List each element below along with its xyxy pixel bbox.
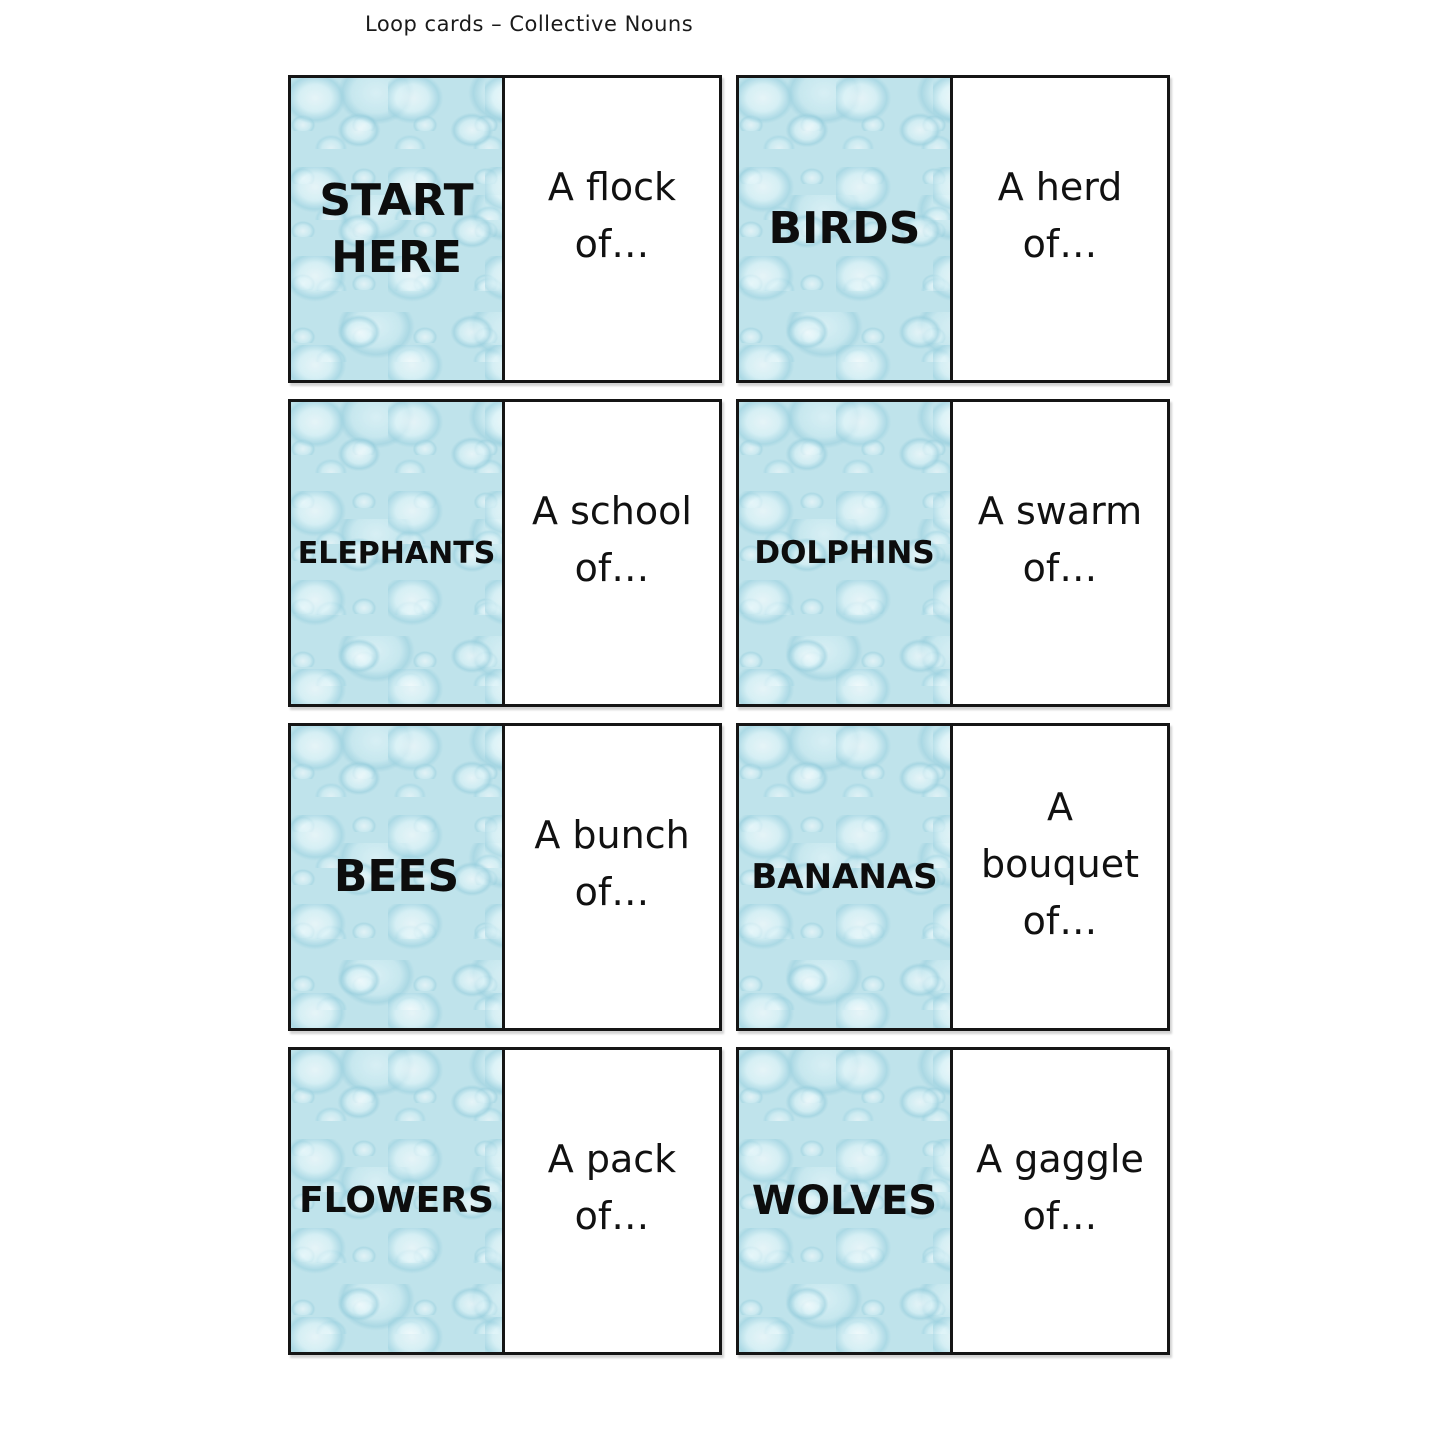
loop-card-bananas: BANANAS A bouquet of… (736, 723, 1170, 1031)
loop-card-dolphins: DOLPHINS A swarm of… (736, 399, 1170, 707)
card-clue: A bouquet of… (981, 779, 1139, 950)
loop-card-grid: START HERE A flock of… BIRDS A herd of… … (288, 75, 1170, 1355)
card-term-panel: BEES (291, 726, 505, 1028)
card-clue-panel: A bouquet of… (953, 726, 1167, 1028)
card-clue: A flock of… (548, 159, 676, 273)
card-clue: A school of… (532, 483, 692, 597)
card-clue: A swarm of… (978, 483, 1142, 597)
card-clue-panel: A swarm of… (953, 402, 1167, 704)
card-clue-panel: A pack of… (505, 1050, 719, 1352)
card-term: WOLVES (748, 1175, 941, 1227)
card-clue-panel: A school of… (505, 402, 719, 704)
card-term: BEES (330, 848, 463, 905)
card-clue-panel: A herd of… (953, 78, 1167, 380)
card-clue-panel: A flock of… (505, 78, 719, 380)
card-term: DOLPHINS (750, 533, 938, 573)
card-term-panel: BIRDS (739, 78, 953, 380)
card-term-panel: DOLPHINS (739, 402, 953, 704)
loop-card-wolves: WOLVES A gaggle of… (736, 1047, 1170, 1355)
loop-card-start-here: START HERE A flock of… (288, 75, 722, 383)
loop-card-birds: BIRDS A herd of… (736, 75, 1170, 383)
card-term-panel: BANANAS (739, 726, 953, 1028)
card-term-panel: ELEPHANTS (291, 402, 505, 704)
card-clue: A herd of… (998, 159, 1123, 273)
card-clue-panel: A gaggle of… (953, 1050, 1167, 1352)
card-clue: A bunch of… (534, 807, 689, 921)
card-term-panel: START HERE (291, 78, 505, 380)
card-term-panel: WOLVES (739, 1050, 953, 1352)
loop-card-bees: BEES A bunch of… (288, 723, 722, 1031)
loop-card-elephants: ELEPHANTS A school of… (288, 399, 722, 707)
card-term: BANANAS (747, 855, 941, 899)
card-clue-panel: A bunch of… (505, 726, 719, 1028)
card-term: START HERE (315, 172, 477, 286)
card-term: BIRDS (764, 200, 924, 257)
card-term: ELEPHANTS (294, 534, 500, 573)
page-title: Loop cards – Collective Nouns (365, 12, 693, 36)
card-term-panel: FLOWERS (291, 1050, 505, 1352)
loop-card-flowers: FLOWERS A pack of… (288, 1047, 722, 1355)
card-term: FLOWERS (295, 1178, 498, 1225)
card-clue: A pack of… (548, 1131, 676, 1245)
card-clue: A gaggle of… (976, 1131, 1144, 1245)
worksheet-page: Loop cards – Collective Nouns START HERE… (0, 0, 1445, 1445)
